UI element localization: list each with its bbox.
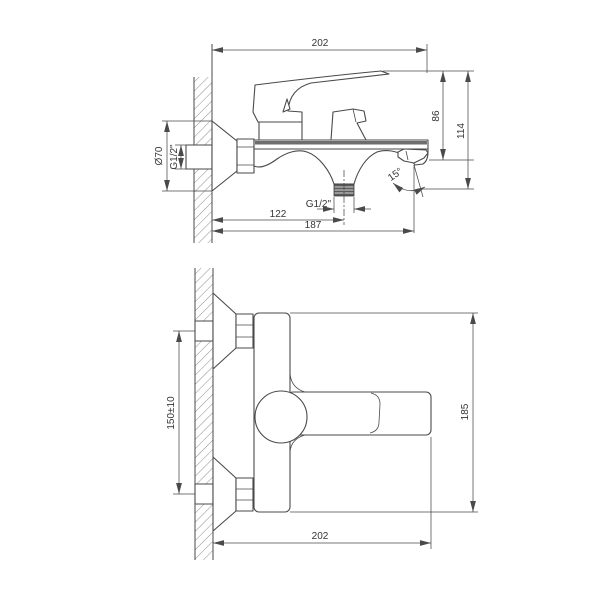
wall-section-front <box>195 268 213 560</box>
mixer-body-front <box>254 313 431 512</box>
dim-202-bottom-label: 202 <box>312 531 329 542</box>
inlet-pipe-top <box>195 321 213 341</box>
dim-202-top-label: 202 <box>312 38 329 49</box>
eccentric-connector-bottom <box>213 457 253 531</box>
technical-drawing-svg: 202 86 114 Ø70 G1/2" G1/2" <box>0 0 600 600</box>
dimension-wall-to-outlet: 122 <box>212 209 344 220</box>
dim-angle-label: 15° <box>386 166 405 184</box>
dim-185-label: 185 <box>460 403 471 420</box>
dim-150-label: 150±10 <box>166 396 177 430</box>
dim-114-label: 114 <box>456 123 467 139</box>
dimension-overall-height: 114 <box>456 71 468 189</box>
body-plate-band <box>255 141 427 145</box>
inlet-pipe-bottom <box>195 484 213 504</box>
inlet-pipe <box>186 145 212 169</box>
eccentric-connector-top <box>213 293 253 369</box>
lever-handle-side <box>253 71 389 122</box>
dim-flange-label: Ø70 <box>154 146 165 165</box>
lever-handle-front <box>288 392 431 435</box>
dim-inlet-thread-label: G1/2" <box>169 144 180 170</box>
hex-nut <box>237 139 254 173</box>
front-view: 150±10 185 202 <box>166 268 478 560</box>
dimension-overall-width-top: 202 <box>212 38 427 73</box>
angle-stream-line <box>414 165 423 197</box>
dimension-wall-to-spout-tip: 187 <box>212 220 414 231</box>
dim-86-label: 86 <box>431 110 442 122</box>
eccentric-connector <box>212 121 254 191</box>
side-view: 202 86 114 Ø70 G1/2" G1/2" <box>154 38 474 243</box>
diverter-knob <box>331 109 366 140</box>
wall-section <box>194 44 212 243</box>
technical-drawing-page: 202 86 114 Ø70 G1/2" G1/2" <box>0 0 600 600</box>
dimension-flange-diameter: Ø70 <box>154 121 167 191</box>
handle-pivot-boss <box>255 391 307 443</box>
wall-hatch-front <box>195 268 213 560</box>
mixer-body-side <box>253 71 428 225</box>
dimension-inlet-spacing: 150±10 <box>166 331 179 494</box>
dimension-handle-to-spout: 86 <box>431 71 443 160</box>
cartridge-cover <box>259 122 302 140</box>
dimension-wall-inlet-thread: G1/2" <box>169 144 181 170</box>
dim-outlet-thread-label: G1/2" <box>306 199 332 210</box>
dim-187-label: 187 <box>305 220 322 231</box>
dimension-spout-angle: 15° <box>386 165 425 233</box>
dimension-shower-outlet-thread: G1/2" <box>306 197 371 213</box>
neck-flare-top <box>290 373 305 392</box>
dimension-front-height: 185 <box>460 313 473 512</box>
eccentric-cone <box>212 121 237 191</box>
dim-122-label: 122 <box>270 209 287 220</box>
